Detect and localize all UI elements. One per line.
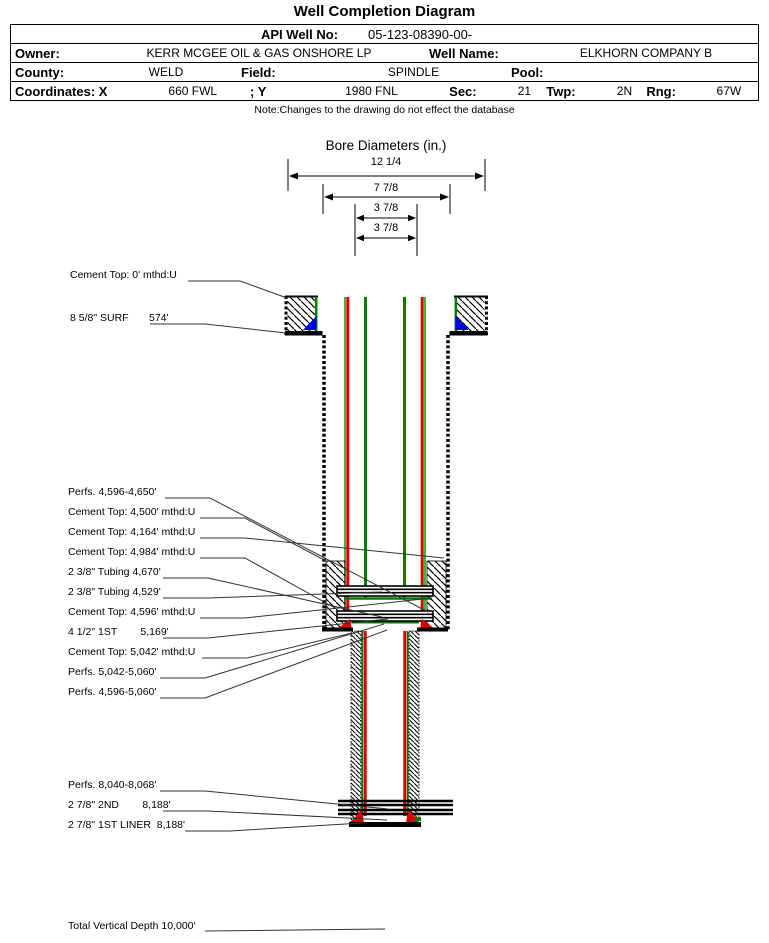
intermediate-section: [322, 297, 448, 632]
annotation-cement-top-0: Cement Top: 0' mthd:U: [70, 269, 177, 281]
annotation-cement-top-5042: Cement Top: 5,042' mthd:U: [68, 646, 195, 658]
annotation-surf-casing: 8 5/8" SURF 574': [70, 312, 169, 324]
annotation-casing-1st-5169: 4 1/2" 1ST 5,169': [68, 626, 169, 638]
annotation-cement-top-4984: Cement Top: 4,984' mthd:U: [68, 546, 195, 558]
annotation-liner-1st-8188: 2 7/8" 1ST LINER 8,188': [68, 819, 185, 831]
annotation-cement-top-4164: Cement Top: 4,164' mthd:U: [68, 526, 195, 538]
surface-casing-section: [285, 296, 488, 336]
annotation-perfs-4596-4650: Perfs. 4,596-4,650': [68, 486, 156, 498]
surface-shoe-plate-left: [285, 331, 323, 336]
total-vertical-depth-label: Total Vertical Depth 10,000': [68, 920, 196, 932]
liner-section: [338, 631, 453, 827]
annotation-tubing-2nd-8188: 2 7/8" 2ND 8,188': [68, 799, 171, 811]
annotation-tubing-4529: 2 3/8" Tubing 4,529': [68, 586, 161, 598]
liner-wall-right: [409, 631, 419, 824]
surface-shoe-plate-right: [450, 331, 488, 336]
annotation-tubing-4670: 2 3/8" Tubing 4,670': [68, 566, 161, 578]
casing-shoe-plate-left: [322, 628, 353, 632]
annotation-perfs-5042-5060: Perfs. 5,042-5,060': [68, 666, 156, 678]
packer-bar-upper: [337, 586, 433, 596]
liner-green-shoe-mark: [415, 817, 421, 821]
annotation-perfs-4596-5060: Perfs. 4,596-5,060': [68, 686, 156, 698]
casing-shoe-plate-right: [417, 628, 448, 632]
liner-wall-left: [351, 631, 361, 824]
annotation-cement-top-4596: Cement Top: 4,596' mthd:U: [68, 606, 195, 618]
well-completion-page: { "title": "Well Completion Diagram", "t…: [0, 0, 769, 943]
annotation-perfs-8040-8068: Perfs. 8,040-8,068': [68, 779, 156, 791]
bore-dimension-lines: [288, 159, 485, 256]
annotation-cement-top-4500: Cement Top: 4,500' mthd:U: [68, 506, 195, 518]
